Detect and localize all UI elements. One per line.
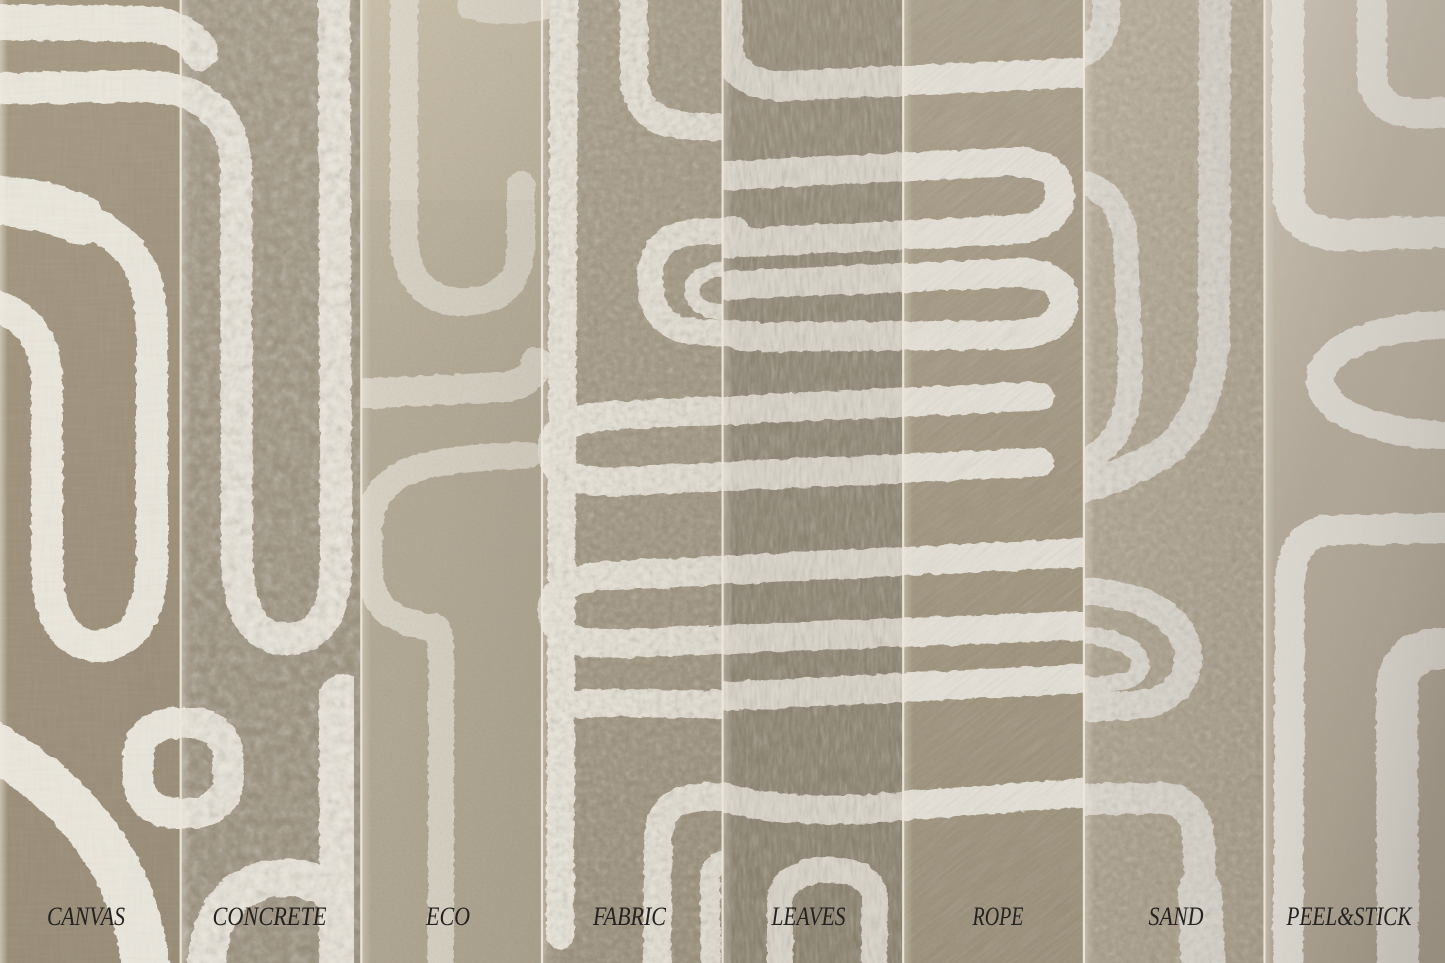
svg-text:ROPE: ROPE	[972, 902, 1024, 931]
svg-text:ECO: ECO	[425, 902, 470, 931]
svg-text:FABRIC: FABRIC	[592, 902, 666, 931]
svg-text:PEEL&STICK: PEEL&STICK	[1286, 902, 1413, 931]
svg-text:SAND: SAND	[1149, 902, 1204, 931]
svg-text:CANVAS: CANVAS	[47, 902, 125, 931]
svg-text:LEAVES: LEAVES	[771, 902, 846, 931]
svg-text:CONCRETE: CONCRETE	[213, 902, 327, 931]
